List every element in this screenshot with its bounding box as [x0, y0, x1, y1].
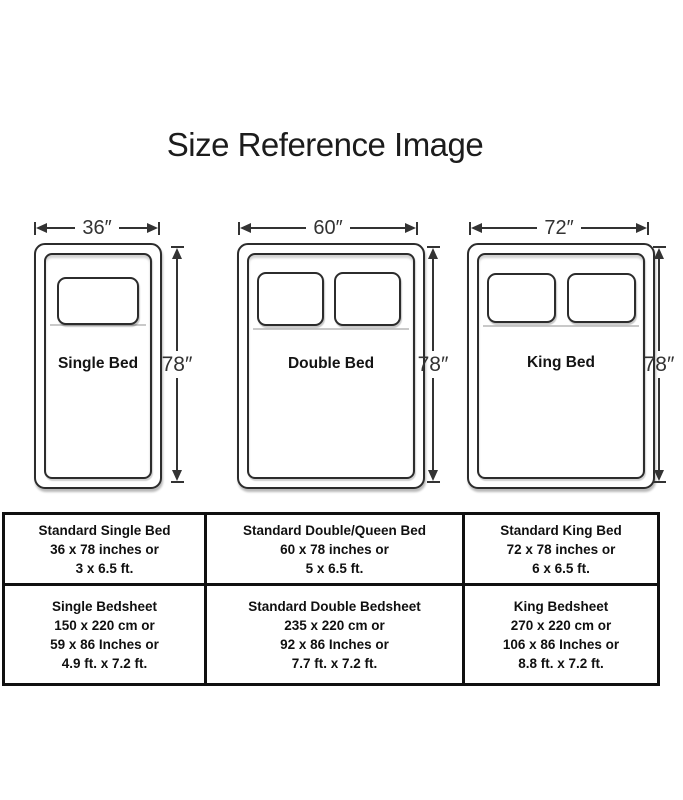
arrow-up-icon [654, 248, 664, 259]
cell-line: Standard Double/Queen Bed [243, 521, 426, 540]
cell-line: 8.8 ft. x 7.2 ft. [518, 654, 604, 673]
cell-line: 6 x 6.5 ft. [532, 559, 590, 578]
cell-line: 7.7 ft. x 7.2 ft. [292, 654, 378, 673]
table-cell-standard-king-bed: Standard King Bed 72 x 78 inches or 6 x … [465, 515, 657, 586]
table-cell-double-bedsheet: Standard Double Bedsheet 235 x 220 cm or… [207, 586, 465, 683]
dimension-endbar [171, 481, 184, 483]
dimension-line [47, 227, 75, 229]
dimension-line [482, 227, 537, 229]
table-cell-single-bedsheet: Single Bedsheet 150 x 220 cm or 59 x 86 … [5, 586, 207, 683]
height-value-single: 78″ [162, 351, 193, 378]
king-bed-outline: King Bed [467, 243, 655, 489]
dimension-line [432, 259, 434, 351]
dimension-line [176, 259, 178, 351]
dimension-line [176, 378, 178, 470]
pillow-icon [567, 273, 636, 323]
king-bed-label: King Bed [469, 354, 653, 372]
single-bed-label: Single Bed [36, 355, 160, 373]
double-bed-outline: Double Bed [237, 243, 425, 489]
width-dimension-king: 72″ [469, 216, 649, 240]
width-dimension-double: 60″ [238, 216, 418, 240]
width-value-king: 72″ [537, 218, 580, 238]
cell-line: 92 x 86 Inches or [280, 635, 389, 654]
cell-line: Standard Single Bed [38, 521, 170, 540]
cell-line: 3 x 6.5 ft. [76, 559, 134, 578]
table-cell-king-bedsheet: King Bedsheet 270 x 220 cm or 106 x 86 I… [465, 586, 657, 683]
cell-line: King Bedsheet [514, 597, 609, 616]
dimension-line [581, 227, 636, 229]
width-value-single: 36″ [75, 218, 118, 238]
table-cell-standard-double-bed: Standard Double/Queen Bed 60 x 78 inches… [207, 515, 465, 586]
pillow-icon [487, 273, 556, 323]
single-bed-outline: Single Bed [34, 243, 162, 489]
arrow-right-icon [147, 223, 158, 233]
arrow-down-icon [172, 470, 182, 481]
height-dimension-single: 78″ [160, 246, 194, 483]
dimension-endbar [416, 222, 418, 235]
sheet-fold-line [253, 328, 409, 330]
cell-line: 5 x 6.5 ft. [306, 559, 364, 578]
dimension-endbar [427, 481, 440, 483]
cell-line: 150 x 220 cm or [54, 616, 155, 635]
page-title: Size Reference Image [0, 126, 650, 164]
cell-line: Single Bedsheet [52, 597, 157, 616]
arrow-left-icon [471, 223, 482, 233]
cell-line: 59 x 86 Inches or [50, 635, 159, 654]
size-table: Standard Single Bed 36 x 78 inches or 3 … [2, 512, 660, 686]
cell-line: 270 x 220 cm or [511, 616, 612, 635]
dimension-line [350, 227, 405, 229]
arrow-down-icon [428, 470, 438, 481]
dimension-endbar [647, 222, 649, 235]
double-bed-label: Double Bed [239, 355, 423, 373]
arrow-left-icon [36, 223, 47, 233]
pillow-icon [257, 272, 324, 326]
arrow-up-icon [172, 248, 182, 259]
arrow-right-icon [405, 223, 416, 233]
cell-line: Standard King Bed [500, 521, 622, 540]
sheet-fold-line [483, 325, 639, 327]
dimension-line [251, 227, 306, 229]
pillow-icon [334, 272, 401, 326]
arrow-right-icon [636, 223, 647, 233]
dimension-line [658, 259, 660, 351]
dimension-endbar [158, 222, 160, 235]
cell-line: 36 x 78 inches or [50, 540, 159, 559]
arrow-up-icon [428, 248, 438, 259]
dimension-line [658, 378, 660, 470]
cell-line: 60 x 78 inches or [280, 540, 389, 559]
arrow-down-icon [654, 470, 664, 481]
arrow-left-icon [240, 223, 251, 233]
cell-line: 4.9 ft. x 7.2 ft. [62, 654, 148, 673]
cell-line: Standard Double Bedsheet [248, 597, 421, 616]
cell-line: 235 x 220 cm or [284, 616, 385, 635]
table-cell-standard-single-bed: Standard Single Bed 36 x 78 inches or 3 … [5, 515, 207, 586]
size-reference-diagram: Size Reference Image 36″ Single Bed 78″ … [0, 0, 683, 800]
cell-line: 72 x 78 inches or [507, 540, 616, 559]
pillow-icon [57, 277, 139, 325]
dimension-line [119, 227, 147, 229]
width-dimension-single: 36″ [34, 216, 160, 240]
width-value-double: 60″ [306, 218, 349, 238]
dimension-endbar [653, 481, 666, 483]
cell-line: 106 x 86 Inches or [503, 635, 619, 654]
dimension-line [432, 378, 434, 470]
